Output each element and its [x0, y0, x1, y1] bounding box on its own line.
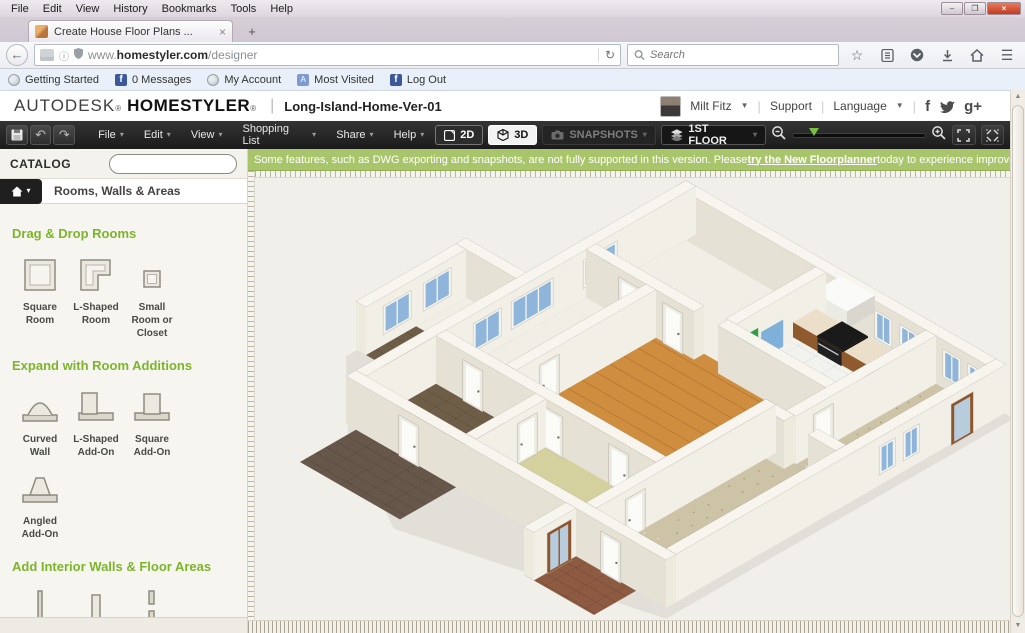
designer-toolbar: ↶ ↷ File▾ Edit▾ View▾ Shopping List▾ Sha… — [0, 121, 1010, 149]
page-icon — [444, 130, 455, 141]
download-icon[interactable] — [935, 44, 959, 66]
catalog-item-small-room[interactable]: Small Room or Closet — [124, 251, 180, 340]
catalog-search[interactable] — [109, 154, 237, 174]
chevron-down-icon: ▾ — [643, 130, 647, 139]
page-content: CATALOG ▾ Rooms, Walls & Areas Drag & Dr… — [0, 149, 1010, 633]
chevron-down-icon: ▼ — [896, 101, 904, 110]
chevron-down-icon: ▾ — [312, 130, 316, 139]
l-shaped-room-icon — [74, 251, 118, 297]
avatar[interactable] — [660, 96, 681, 117]
scroll-up-icon[interactable]: ▲ — [1011, 90, 1025, 104]
zoom-in-icon[interactable] — [931, 125, 947, 146]
section-heading: Drag & Drop Rooms — [12, 226, 235, 241]
maximize-button[interactable]: ❐ — [964, 2, 986, 15]
site-icon[interactable] — [40, 49, 54, 61]
url-text[interactable]: www.homestyler.com/designer — [88, 48, 593, 62]
category-bar: ▾ Rooms, Walls & Areas — [0, 179, 247, 204]
url-bar[interactable]: ⓘ www.homestyler.com/designer ↻ — [34, 44, 621, 66]
tab-title: Create House Floor Plans ... — [54, 26, 213, 38]
globe-icon — [207, 74, 219, 86]
menu-tools[interactable]: Tools — [224, 2, 264, 16]
facebook-icon[interactable]: f — [925, 98, 930, 115]
search-icon — [634, 49, 645, 61]
menu-view[interactable]: View — [69, 2, 107, 16]
design-canvas[interactable]: Some features, such as DWG exporting and… — [248, 149, 1010, 633]
reading-list-icon[interactable] — [875, 44, 899, 66]
facebook-icon: f — [115, 74, 127, 86]
back-button[interactable]: ← — [6, 44, 28, 66]
save-button[interactable] — [6, 125, 28, 145]
zoom-slider-handle[interactable] — [809, 128, 819, 136]
section-heading: Expand with Room Additions — [12, 358, 235, 373]
language-menu[interactable]: Language — [833, 99, 886, 113]
shield-icon[interactable] — [74, 48, 83, 62]
brand-logo: AUTODESK® HOMESTYLER® — [14, 96, 256, 116]
menu-history[interactable]: History — [106, 2, 154, 16]
zoom-slider[interactable] — [792, 133, 926, 138]
bookmark-log-out[interactable]: fLog Out — [390, 74, 446, 86]
catalog-title: CATALOG — [10, 157, 71, 171]
menu-file[interactable]: File — [4, 2, 36, 16]
designer-menu-share[interactable]: Share▾ — [327, 129, 382, 141]
cube-icon — [497, 129, 509, 141]
catalog-header: CATALOG — [0, 149, 247, 179]
undo-button[interactable]: ↶ — [30, 125, 52, 145]
browser-window: File Edit View History Bookmarks Tools H… — [0, 0, 1025, 633]
redo-button[interactable]: ↷ — [53, 125, 75, 145]
chevron-down-icon: ▾ — [120, 130, 124, 139]
menu-edit[interactable]: Edit — [36, 2, 69, 16]
new-floorplanner-link[interactable]: try the New Floorplanner — [747, 154, 877, 166]
app-header: AUTODESK® HOMESTYLER® | Long-Island-Home… — [0, 91, 1010, 121]
small-room-icon — [130, 251, 174, 297]
category-title: Rooms, Walls & Areas — [54, 184, 180, 198]
divider: | — [270, 97, 274, 115]
bookmark-messages[interactable]: f0 Messages — [115, 74, 191, 86]
catalog-item-square-room[interactable]: Square Room — [12, 251, 68, 340]
chevron-down-icon: ▼ — [741, 101, 749, 110]
sidebar-footer — [0, 617, 247, 633]
facebook-icon: f — [390, 74, 402, 86]
bookmarks-bar: Getting Started f0 Messages My Account A… — [0, 69, 1025, 91]
designer-menu-help[interactable]: Help▾ — [385, 129, 434, 141]
browser-menubar: File Edit View History Bookmarks Tools H… — [0, 0, 1025, 17]
tab-favicon — [35, 25, 48, 38]
home-icon[interactable] — [965, 44, 989, 66]
divider: | — [913, 99, 916, 114]
snapshots-button[interactable]: SNAPSHOTS ▾ — [542, 125, 655, 145]
bookmark-getting-started[interactable]: Getting Started — [8, 74, 99, 86]
fit-view-button[interactable] — [952, 125, 975, 145]
floor-selector[interactable]: 1ST FLOOR ▾ — [661, 125, 766, 145]
catalog-item-square-addon[interactable]: Square Add-On — [124, 383, 180, 459]
curved-wall-icon — [18, 383, 62, 429]
user-menu[interactable]: Milt Fitz — [690, 99, 731, 113]
divider: | — [821, 99, 824, 114]
ruler-horizontal-bottom — [248, 620, 1010, 633]
angled-addon-icon — [18, 465, 62, 511]
floppy-icon — [11, 129, 23, 141]
designer-menu-edit[interactable]: Edit▾ — [135, 129, 180, 141]
bookmark-star-icon[interactable]: ☆ — [845, 44, 869, 66]
header-right: Milt Fitz ▼ | Support | Language ▼ | f g… — [660, 96, 996, 117]
notice-bar: Some features, such as DWG exporting and… — [248, 149, 1010, 171]
window-controls: – ❐ × — [941, 2, 1021, 15]
chevron-down-icon: ▾ — [370, 130, 374, 139]
toolbar-right: 2D 3D SNAPSHOTS ▾ 1ST FLOOR ▾ — [435, 125, 1004, 146]
twitter-icon[interactable] — [939, 100, 955, 113]
square-addon-icon — [130, 383, 174, 429]
minimize-button[interactable]: – — [941, 2, 963, 15]
globe-icon — [8, 74, 20, 86]
view-3d-button[interactable]: 3D — [488, 125, 537, 145]
expand-icon — [986, 129, 999, 142]
support-link[interactable]: Support — [770, 99, 812, 113]
menu-bookmarks[interactable]: Bookmarks — [155, 2, 224, 16]
expand-view-button[interactable] — [981, 125, 1004, 145]
catalog-sidebar: CATALOG ▾ Rooms, Walls & Areas Drag & Dr… — [0, 149, 248, 633]
catalog-search-input[interactable] — [110, 155, 237, 173]
search-box[interactable] — [627, 44, 839, 66]
browser-tab[interactable]: Create House Floor Plans ... × — [28, 20, 233, 42]
chevron-down-icon: ▾ — [167, 130, 171, 139]
info-icon[interactable]: ⓘ — [59, 48, 69, 63]
square-room-icon — [18, 251, 62, 297]
catalog-item-angled-addon[interactable]: Angled Add-On — [12, 465, 68, 541]
hamburger-menu-icon[interactable]: ☰ — [995, 44, 1019, 66]
floor-plan-3d-view[interactable] — [255, 178, 1010, 620]
chevron-down-icon: ▾ — [420, 130, 424, 139]
tab-close-icon[interactable]: × — [219, 27, 226, 37]
designer-menu-view[interactable]: View▾ — [182, 129, 232, 141]
scroll-down-icon[interactable]: ▼ — [1011, 619, 1025, 633]
navigation-bar: ← ⓘ www.homestyler.com/designer ↻ ☆ ☰ — [0, 42, 1025, 69]
l-shaped-addon-icon — [74, 383, 118, 429]
chevron-down-icon: ▾ — [26, 186, 30, 195]
catalog-item-l-shaped-room[interactable]: L-Shaped Room — [68, 251, 124, 340]
catalog-item-l-shaped-addon[interactable]: L-Shaped Add-On — [68, 383, 124, 459]
bookmark-my-account[interactable]: My Account — [207, 74, 281, 86]
browser-scrollbar[interactable]: ▲ ▼ — [1010, 90, 1025, 633]
zoom-out-icon[interactable] — [771, 125, 787, 146]
layers-icon — [670, 129, 684, 141]
search-input[interactable] — [650, 49, 832, 61]
reload-icon[interactable]: ↻ — [598, 48, 615, 62]
designer-menu-file[interactable]: File▾ — [89, 129, 133, 141]
catalog-body: Drag & Drop Rooms Square Room L-Shaped R… — [0, 204, 247, 633]
menu-help[interactable]: Help — [263, 2, 300, 16]
section-heading: Add Interior Walls & Floor Areas — [12, 559, 235, 574]
divider: | — [758, 99, 761, 114]
catalog-item-curved-wall[interactable]: Curved Wall — [12, 383, 68, 459]
bookmark-most-visited[interactable]: AMost Visited — [297, 74, 374, 86]
catalog-home-button[interactable]: ▾ — [0, 179, 42, 204]
document-title: Long-Island-Home-Ver-01 — [284, 99, 441, 114]
chevron-down-icon: ▾ — [753, 130, 757, 139]
close-button[interactable]: × — [987, 2, 1021, 15]
designer-menu-shopping-list[interactable]: Shopping List▾ — [233, 123, 325, 147]
home-icon — [11, 186, 23, 197]
google-plus-icon[interactable]: g+ — [964, 98, 982, 115]
tab-strip: Create House Floor Plans ... × + — [0, 17, 1025, 42]
view-2d-button[interactable]: 2D — [435, 125, 483, 145]
folder-icon: A — [297, 74, 309, 86]
scrollbar-thumb[interactable] — [1012, 105, 1024, 617]
pocket-icon[interactable] — [905, 44, 929, 66]
ruler-vertical — [248, 171, 255, 620]
new-tab-button[interactable]: + — [240, 23, 264, 41]
ruler-horizontal — [255, 171, 1010, 178]
fullscreen-icon — [957, 129, 970, 142]
camera-icon — [551, 130, 564, 140]
chevron-down-icon: ▾ — [218, 130, 222, 139]
